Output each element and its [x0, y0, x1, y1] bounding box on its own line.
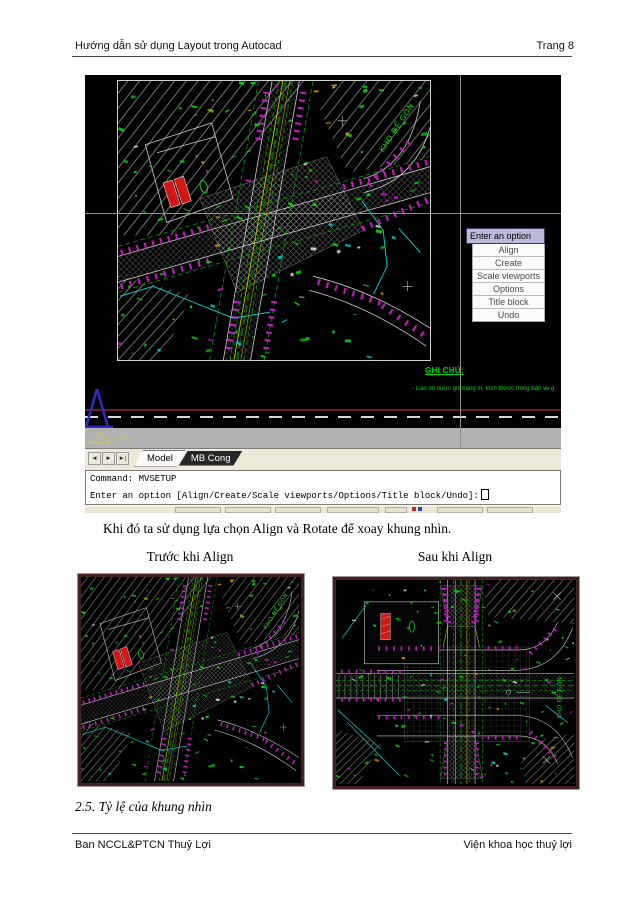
tab-nav-first-icon[interactable]: ◄	[88, 452, 101, 465]
header-rule	[72, 56, 572, 57]
menu-item-undo[interactable]: Undo	[473, 308, 544, 321]
crosshair-horizontal	[85, 213, 561, 214]
layout-viewport[interactable]	[117, 80, 431, 361]
header-page-number: Trang 8	[536, 40, 574, 52]
cad-dashed-line	[85, 416, 561, 418]
command-line-window[interactable]: Command: MVSETUP Enter an option [Align/…	[85, 470, 561, 505]
crosshair-vertical	[460, 75, 461, 448]
command-history-line: Command: MVSETUP	[90, 474, 176, 484]
tab-nav-next-icon[interactable]: ►	[102, 452, 115, 465]
status-icon	[418, 507, 422, 511]
menu-item-align[interactable]: Align	[473, 244, 544, 256]
mvsetup-option-menu: Enter an option Align Create Scale viewp…	[466, 228, 545, 322]
document-page: Hướng dẫn sử dụng Layout trong Autocad T…	[0, 0, 638, 902]
cad-note-title: GHI CHÚ:	[425, 366, 464, 375]
footer-rule	[72, 833, 572, 834]
screenshot-before-align	[77, 573, 305, 787]
tab-mb-cong[interactable]: MB Cong	[179, 451, 243, 466]
text-cursor	[481, 489, 489, 500]
section-heading: 2.5. Tỷ lệ của khung nhìn	[75, 799, 212, 815]
menu-item-create[interactable]: Create	[473, 256, 544, 269]
footer-right: Viện khoa học thuỷ lợi	[463, 839, 572, 851]
layout-tab-bar: ◄ ► ►| Model MB Cong	[85, 449, 561, 467]
status-icon	[412, 507, 416, 511]
body-paragraph: Khi đó ta sử dụng lựa chọn Align và Rota…	[103, 521, 573, 537]
footer-left: Ban NCCL&PTCN Thuỷ Lợi	[75, 839, 211, 851]
menu-item-title-block[interactable]: Title block	[473, 295, 544, 308]
menu-item-scale-viewports[interactable]: Scale viewports	[473, 269, 544, 282]
cad-note-text: - Cao độ được ghi bằng m, kích thước tro…	[412, 386, 560, 392]
tab-model[interactable]: Model	[134, 450, 186, 467]
context-menu-title: Enter an option	[466, 228, 545, 244]
tab-nav-last-icon[interactable]: ►|	[116, 452, 129, 465]
screenshot-after-align	[332, 576, 580, 790]
command-prompt-line[interactable]: Enter an option [Align/Create/Scale view…	[90, 489, 489, 501]
paper-edge-artifact	[87, 430, 139, 446]
header-title: Hướng dẫn sử dụng Layout trong Autocad	[75, 40, 282, 52]
menu-item-options[interactable]: Options	[473, 282, 544, 295]
caption-after-align: Sau khi Align	[332, 549, 578, 565]
caption-before-align: Trước khi Align	[77, 549, 303, 565]
status-bar-partial	[85, 506, 561, 513]
cad-dark-red-line	[85, 409, 561, 411]
horizontal-scrollbar[interactable]	[85, 428, 561, 449]
paperspace-ucs-icon	[85, 387, 117, 428]
